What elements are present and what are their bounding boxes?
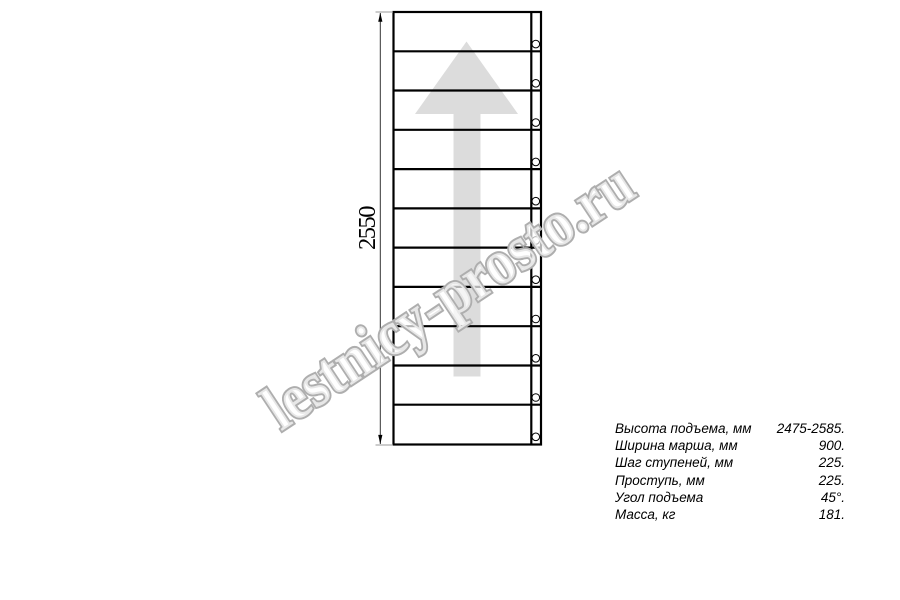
- svg-text:2550: 2550: [354, 206, 381, 250]
